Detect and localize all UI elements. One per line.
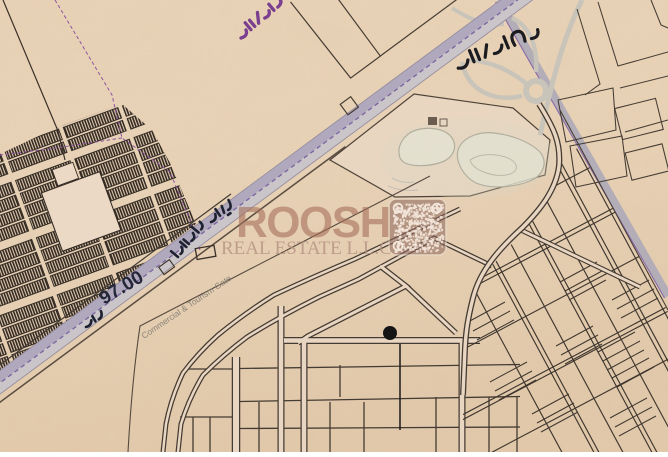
- svg-text:REAL ESTATE L.L.C: REAL ESTATE L.L.C: [221, 238, 392, 259]
